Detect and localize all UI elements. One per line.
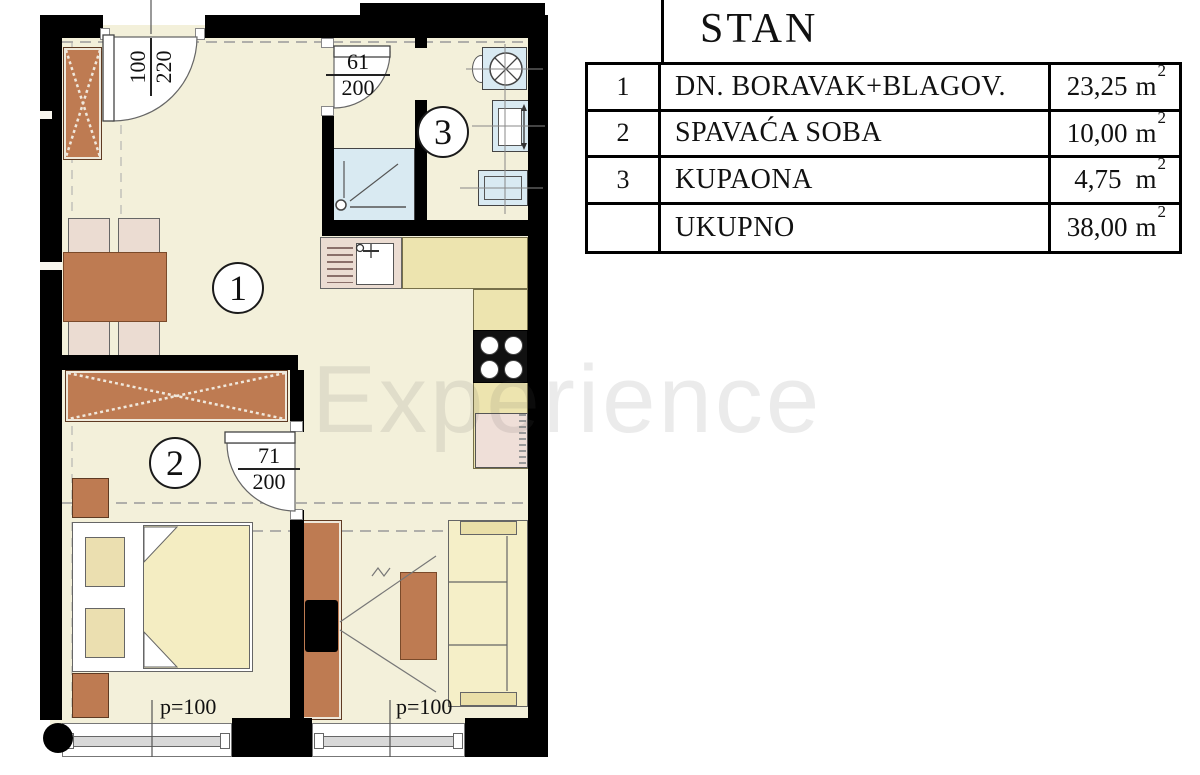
fridge-hatch	[519, 414, 526, 467]
door-jamb	[195, 28, 205, 40]
kitchen-counter	[402, 237, 528, 289]
burner	[504, 360, 523, 379]
bathroom-door-label: 61 200	[326, 50, 390, 100]
burner	[480, 360, 499, 379]
page: 1 2 3 100 220 61 200 71 200 p=100 p=100 …	[0, 0, 1200, 775]
area-value: 4,75	[1074, 164, 1121, 195]
kitchen-sink-basin	[356, 243, 394, 285]
table-cell-num: 3	[588, 158, 661, 205]
window-jamb	[453, 733, 463, 749]
table-cell-area: 38,00m2	[1051, 205, 1179, 252]
door-jamb	[290, 509, 303, 520]
bedroom-door-label: 71 200	[238, 444, 300, 494]
table-cell-num: 1	[588, 65, 661, 112]
window-glazing	[316, 736, 461, 747]
sofa	[448, 520, 528, 707]
bed-blanket	[143, 525, 250, 669]
sofa-armrest	[460, 521, 517, 535]
coffee-table	[400, 572, 437, 660]
room-number-bathroom: 3	[417, 106, 469, 158]
appliance-inner	[484, 176, 522, 200]
room-name: DN. BORAVAK+BLAGOV.	[675, 71, 1006, 103]
entrance-door-label: 100 220	[126, 38, 176, 96]
column	[43, 723, 73, 753]
floor-plan: 1 2 3 100 220 61 200 71 200 p=100 p=100	[0, 0, 570, 775]
wall-bottom	[465, 718, 548, 757]
pillow	[85, 537, 125, 587]
wall-bathroom	[322, 220, 528, 236]
area-unit: m2	[1135, 71, 1165, 102]
burner	[480, 336, 499, 355]
door-width: 100	[126, 38, 152, 96]
door-jamb	[321, 106, 334, 116]
row-number: 1	[617, 72, 630, 102]
wall-bathroom	[322, 108, 334, 222]
area-unit: m2	[1135, 164, 1165, 195]
table-cell-area: 23,25m2	[1051, 65, 1179, 112]
room-number-text: 3	[434, 111, 452, 153]
room-name: SPAVAĆA SOBA	[675, 117, 882, 149]
room-number-text: 1	[229, 267, 247, 309]
wall-right	[528, 15, 548, 755]
wall-top	[360, 3, 545, 38]
stove	[473, 330, 528, 383]
area-table: 1 DN. BORAVAK+BLAGOV. 23,25m2 2 SPAVAĆA …	[585, 62, 1182, 254]
table-cell-name: DN. BORAVAK+BLAGOV.	[661, 65, 1051, 112]
table-cell-area: 4,75m2	[1051, 158, 1179, 205]
window-jamb	[314, 733, 324, 749]
wall-top	[55, 15, 103, 38]
room-number-bedroom: 2	[149, 437, 201, 489]
area-unit: m2	[1135, 118, 1165, 149]
room-number-living: 1	[212, 262, 264, 314]
area-value: 23,25	[1067, 71, 1128, 102]
door-height: 200	[253, 470, 286, 494]
row-number: 3	[617, 165, 630, 195]
room-name: KUPAONA	[675, 164, 813, 196]
wall-notch	[40, 111, 52, 119]
table-cell-name: KUPAONA	[661, 158, 1051, 205]
nightstand	[72, 673, 109, 718]
legend-title-divider	[661, 0, 664, 65]
wall-bottom	[232, 718, 312, 757]
legend-title: STAN	[700, 5, 818, 53]
pillow	[85, 608, 125, 658]
door-jamb	[290, 421, 303, 432]
wall-top	[205, 15, 360, 38]
washing-machine	[482, 47, 527, 90]
window-jamb	[220, 733, 230, 749]
parapet-label-living: p=100	[396, 694, 452, 720]
wall-notch	[40, 262, 62, 270]
bedroom-window	[62, 723, 232, 757]
door-width: 61	[326, 50, 390, 76]
door-jamb	[100, 28, 110, 40]
wall-interior	[290, 510, 304, 723]
nightstand	[72, 478, 109, 518]
window-glazing	[66, 736, 228, 747]
shower	[330, 148, 415, 222]
sofa-armrest	[460, 692, 517, 706]
row-number: 2	[617, 118, 630, 148]
bedroom-wardrobe	[65, 370, 288, 422]
table-cell-name: SPAVAĆA SOBA	[661, 112, 1051, 159]
table-cell-num: 2	[588, 112, 661, 159]
living-window	[312, 723, 465, 757]
drainboard	[327, 247, 353, 283]
area-unit: m2	[1135, 212, 1165, 243]
wall-left	[40, 15, 62, 720]
door-height: 200	[342, 76, 375, 100]
burner	[504, 336, 523, 355]
sink-basin	[498, 108, 522, 146]
wall-interior	[60, 355, 298, 370]
table-cell-name: UKUPNO	[661, 205, 1051, 252]
room-number-text: 2	[166, 442, 184, 484]
area-value: 10,00	[1067, 118, 1128, 149]
area-value: 38,00	[1067, 212, 1128, 243]
door-width: 71	[238, 444, 300, 470]
door-height: 220	[152, 51, 176, 84]
table-cell-num	[588, 205, 661, 252]
wall-bathroom	[415, 33, 427, 48]
room-name: UKUPNO	[675, 212, 795, 244]
dining-table	[63, 252, 167, 322]
hall-wardrobe	[63, 47, 102, 160]
table-cell-area: 10,00m2	[1051, 112, 1179, 159]
tv	[305, 600, 338, 652]
door-jamb	[321, 38, 334, 48]
parapet-label-bedroom: p=100	[160, 694, 216, 720]
